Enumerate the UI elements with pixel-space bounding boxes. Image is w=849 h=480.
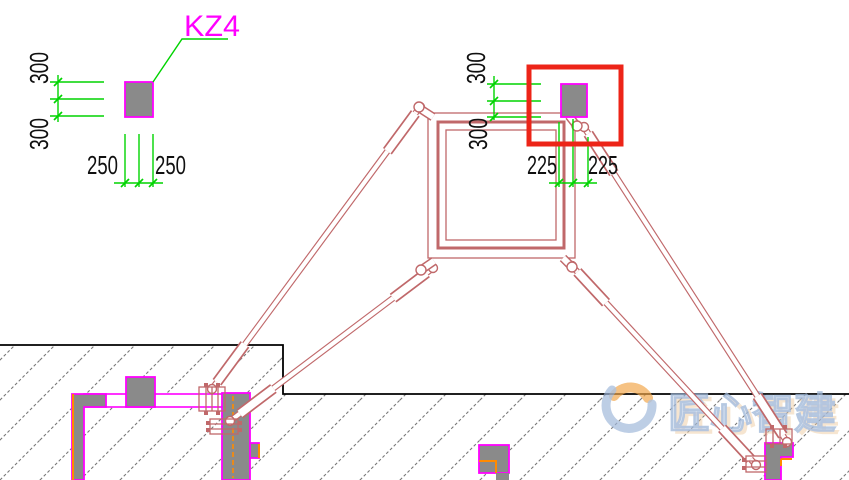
dim-250-left: 250: [87, 150, 118, 180]
left-column-dimensions: 300 300 250 250: [24, 52, 186, 187]
column-kz4: [125, 82, 153, 117]
column-right: [561, 84, 587, 117]
hinge-pin-icon: [752, 461, 761, 470]
dim-225-left: 225: [527, 150, 557, 180]
dim-300-top: 300: [24, 52, 54, 84]
column-tag-label: KZ4: [184, 10, 240, 43]
corner-hinge-icon: [567, 262, 577, 272]
drawing-svg: 匠心智建 匠心智建: [0, 0, 849, 480]
right-column-dimensions: 300 300 225 225: [461, 52, 618, 187]
corner-hinge-icon: [416, 265, 426, 275]
embed-block: [126, 377, 155, 407]
mast-square-section: [414, 102, 582, 275]
dim-225-right: 225: [588, 150, 618, 180]
left-column-symbol: [125, 82, 153, 117]
column-tag: KZ4: [153, 10, 240, 82]
dim-300-top-right: 300: [461, 52, 491, 84]
dim-300-bottom-right: 300: [463, 118, 493, 150]
dim-250-right: 250: [155, 150, 186, 180]
dim-300-bottom: 300: [24, 118, 54, 150]
cad-drawing-canvas: 匠心智建 匠心智建: [0, 0, 849, 480]
corner-hinge-icon: [414, 102, 424, 112]
leader-line: [153, 39, 228, 82]
tie-strut-upper-left: [208, 103, 425, 394]
right-column-symbol: [561, 84, 587, 117]
